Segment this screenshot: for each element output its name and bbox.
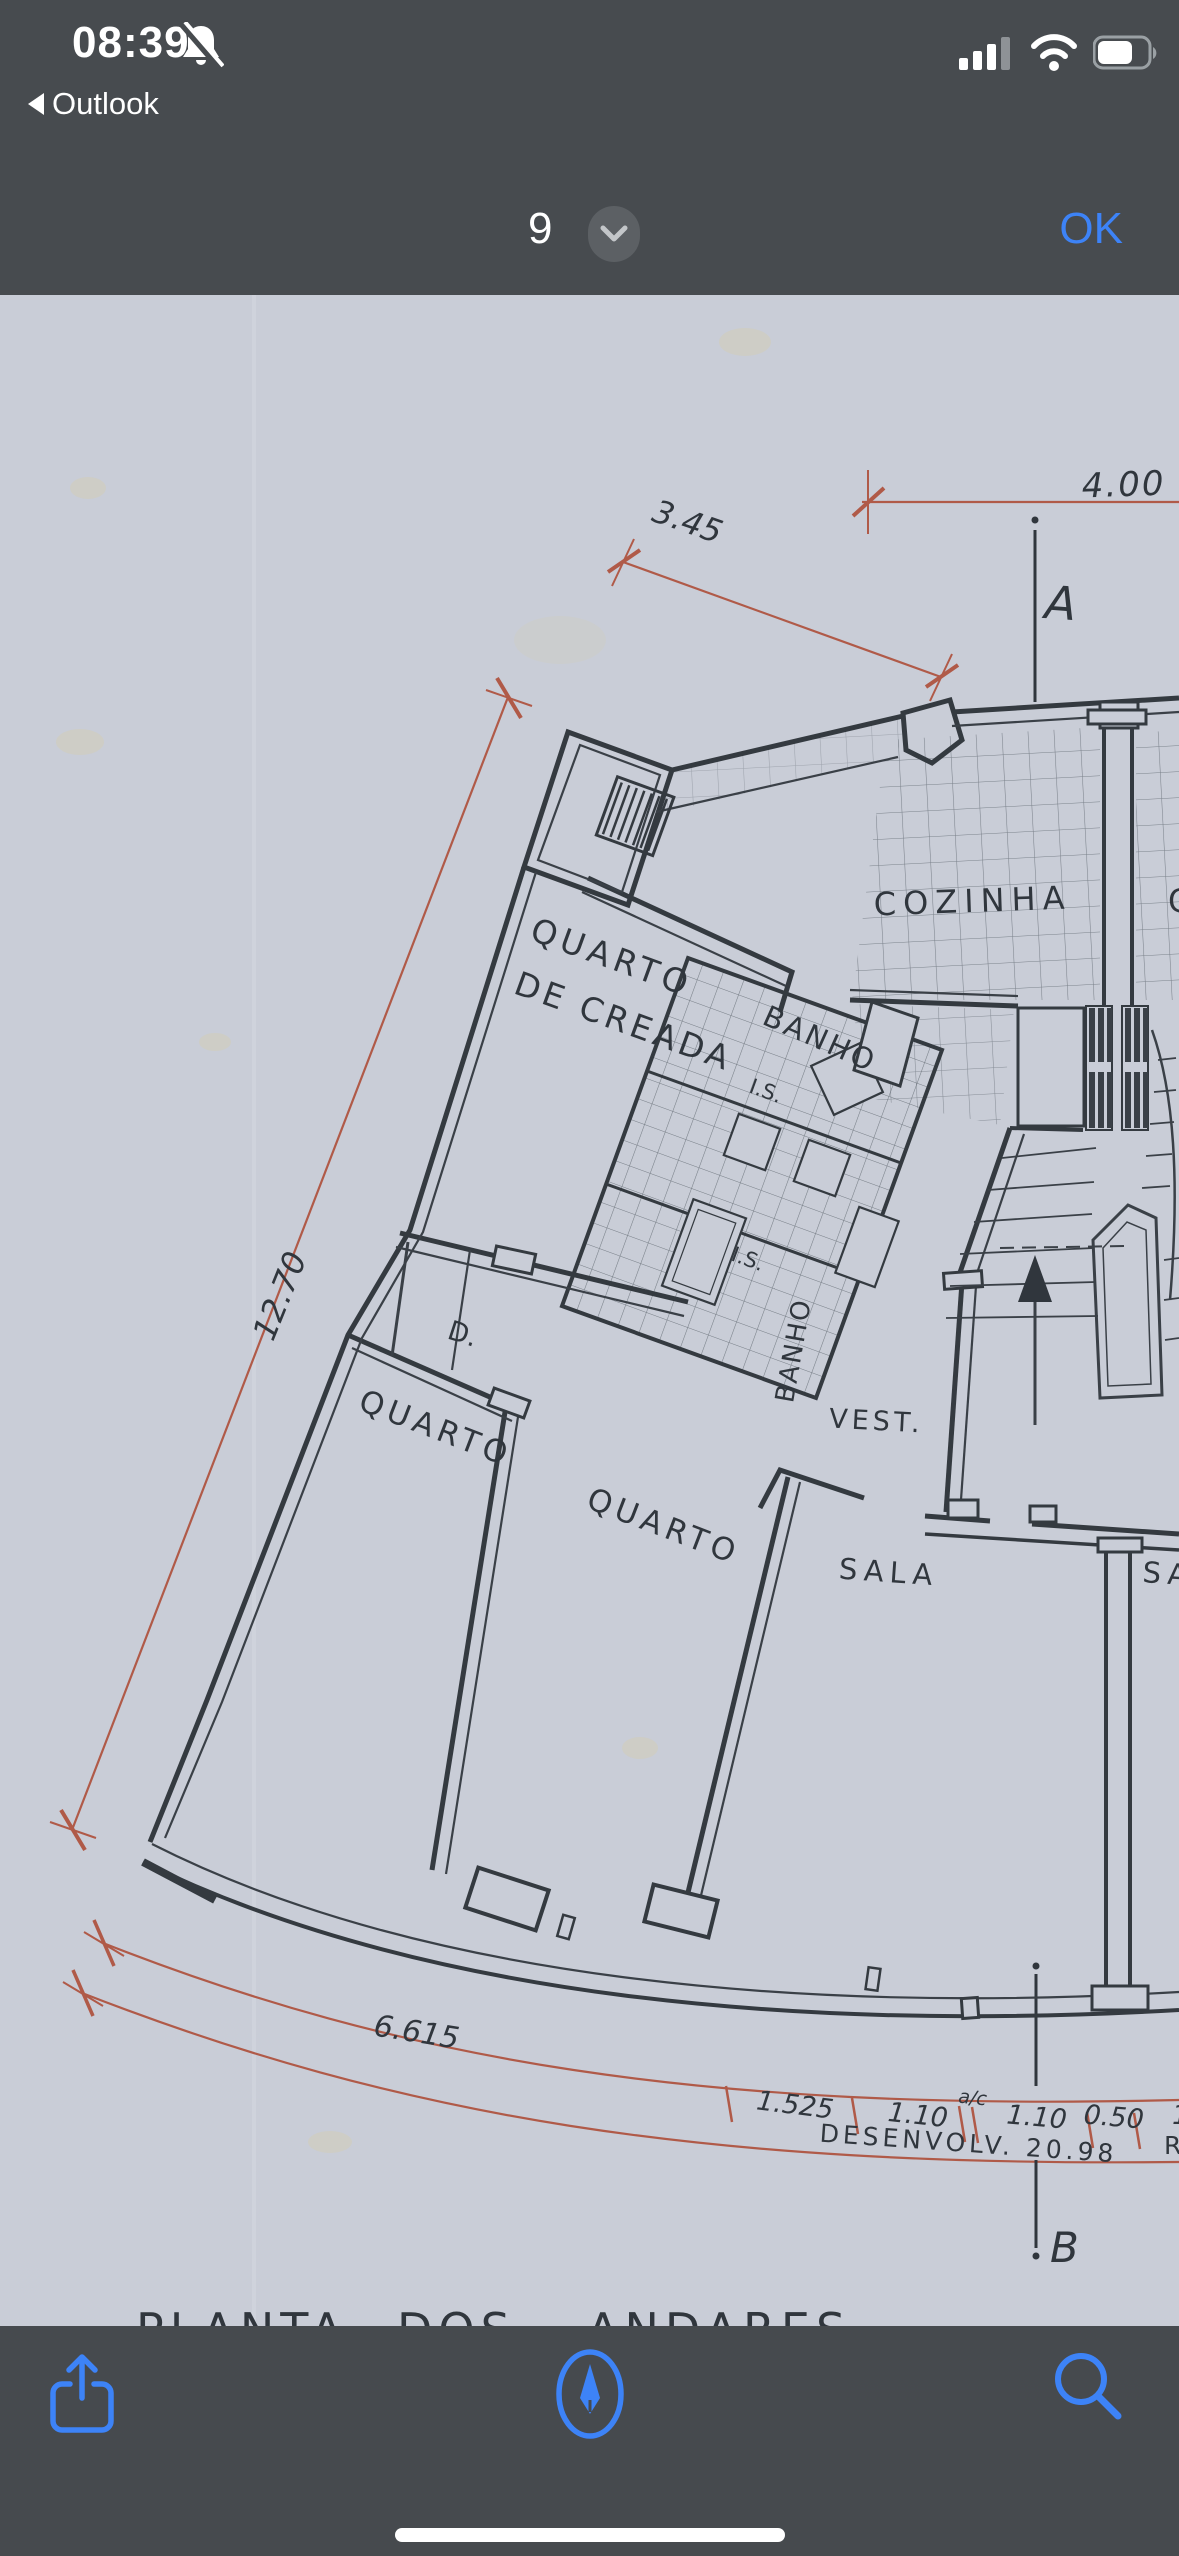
label-quarto-right: QUARTO [582,1481,745,1572]
dim-partial-1: 1 [1172,2100,1179,2131]
phone-screen: 08:39 Outlook [0,0,1179,2556]
title-word-2: DOS [397,2303,516,2326]
share-icon[interactable] [48,2352,116,2436]
dim-ac: a/c [957,2086,988,2111]
dim-3-45: 3.45 [648,492,728,551]
label-cozinha-partial: C [1168,882,1179,920]
battery-icon [1093,35,1159,71]
label-section-a: A [1040,575,1078,631]
bottom-toolbar [0,2326,1179,2556]
label-cozinha: COZINHA [873,879,1072,924]
status-bar: 08:39 Outlook [0,0,1179,295]
cellular-signal-icon [959,36,1015,70]
dim-0-50: 0.50 [1082,2099,1145,2135]
wifi-icon [1029,34,1079,72]
flue-ducts [1086,1006,1148,1130]
label-vest: VEST. [828,1404,924,1440]
markup-icon[interactable] [554,2348,626,2440]
page-dropdown-button[interactable] [588,206,640,262]
document-viewer[interactable]: QUARTO DE CREADA BANHO COZINHA C I.S. I.… [0,295,1179,2326]
page-indicator: 9 [528,204,552,254]
dim-desenvolv-partial: R [1164,2131,1179,2160]
dim-6-615: 6.615 [371,2009,461,2057]
drawing-title: PLANTA DOS ANDARES [136,2303,851,2326]
label-section-b: B [1050,2223,1079,2272]
status-time: 08:39 [72,18,190,68]
balcony-grille [596,777,674,856]
back-app-label: Outlook [52,86,159,122]
chevron-down-icon [600,225,628,243]
title-word-3: ANDARES [587,2303,851,2326]
label-sala: SALA [838,1552,940,1593]
back-chevron-icon [28,93,44,115]
ok-button[interactable]: OK [1059,204,1123,254]
back-to-app[interactable]: Outlook [28,86,159,122]
label-sala-partial: SA [1142,1555,1179,1592]
bell-slash-icon [178,22,224,70]
search-icon[interactable] [1048,2346,1128,2426]
dim-4-00: 4.00 [1081,464,1166,507]
label-closet: D. [444,1315,482,1354]
floor-plan-drawing: QUARTO DE CREADA BANHO COZINHA C I.S. I.… [0,295,1179,2326]
title-word-1: PLANTA [136,2303,348,2326]
home-indicator[interactable] [395,2528,785,2542]
dim-1-10-b: 1.10 [1005,2099,1068,2135]
